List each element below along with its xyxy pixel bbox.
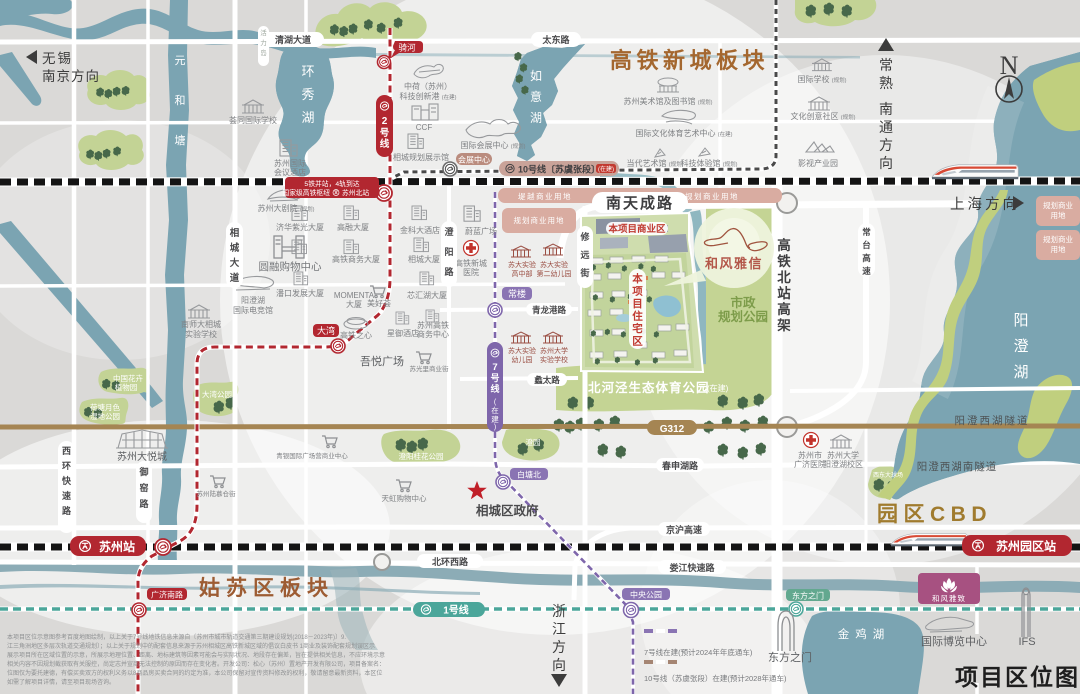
svg-text:北环西路: 北环西路 bbox=[432, 556, 469, 567]
svg-text:中国花卉: 中国花卉 bbox=[113, 373, 143, 383]
svg-text:相城大厦: 相城大厦 bbox=[408, 254, 440, 264]
svg-text:本项目住宅区: 本项目住宅区 bbox=[632, 272, 643, 348]
svg-text:南师大相城: 南师大相城 bbox=[181, 319, 221, 329]
svg-text:中央公园: 中央公园 bbox=[630, 590, 662, 600]
svg-text:苏大实验: 苏大实验 bbox=[540, 260, 568, 269]
svg-text:规划公园: 规划公园 bbox=[718, 309, 768, 324]
svg-text:堤越商业用地: 堤越商业用地 bbox=[518, 191, 572, 201]
svg-text:娄江快速路: 娄江快速路 bbox=[668, 562, 715, 573]
svg-text:蠡太路: 蠡太路 bbox=[534, 375, 560, 385]
svg-text:湿地公园: 湿地公园 bbox=[90, 411, 120, 421]
svg-text:金鸡湖: 金鸡湖 bbox=[838, 627, 891, 641]
svg-text:广济南路: 广济南路 bbox=[151, 590, 183, 600]
svg-text:如需了解项目详情，请至项目现场咨询。: 如需了解项目详情，请至项目现场咨询。 bbox=[7, 678, 115, 686]
svg-text:高融大厦: 高融大厦 bbox=[337, 222, 369, 232]
svg-text:中荷（苏州）: 中荷（苏州） bbox=[404, 81, 452, 91]
svg-text:修远街: 修远街 bbox=[579, 231, 590, 278]
svg-text:高铁之心: 高铁之心 bbox=[340, 330, 372, 340]
svg-text:第二幼儿园: 第二幼儿园 bbox=[537, 269, 572, 278]
svg-text:太东路: 太东路 bbox=[541, 34, 570, 45]
svg-text:规划商业用地: 规划商业用地 bbox=[514, 215, 565, 225]
svg-text:规划商业: 规划商业 bbox=[1043, 200, 1073, 210]
svg-text:无锡: 无锡 bbox=[42, 51, 73, 66]
svg-text:苏州站: 苏州站 bbox=[99, 539, 135, 554]
svg-text:圆融购物中心: 圆融购物中心 bbox=[259, 260, 322, 273]
svg-text:上海方向: 上海方向 bbox=[950, 196, 1020, 213]
svg-text:相城规划展示馆: 相城规划展示馆 bbox=[393, 152, 449, 162]
svg-text:阳澄西湖隧道: 阳澄西湖隧道 bbox=[955, 414, 1030, 427]
svg-text:京沪高速: 京沪高速 bbox=[666, 524, 702, 535]
svg-text:号: 号 bbox=[490, 373, 499, 383]
svg-text:国家级高铁枢纽: 国家级高铁枢纽 bbox=[282, 188, 330, 197]
svg-text:10号线〔苏虞张段〕: 10号线〔苏虞张段〕 bbox=[518, 164, 600, 175]
svg-text:阳澄湖校区: 阳澄湖校区 bbox=[823, 459, 863, 469]
svg-text:白塘北: 白塘北 bbox=[517, 470, 541, 480]
svg-text:常楼: 常楼 bbox=[508, 288, 526, 299]
svg-text:实验学校: 实验学校 bbox=[540, 355, 568, 364]
svg-text:荷塘月色: 荷塘月色 bbox=[90, 402, 120, 412]
svg-text:如意湖: 如意湖 bbox=[530, 68, 542, 125]
svg-text:苏州高铁: 苏州高铁 bbox=[417, 320, 449, 330]
svg-text:高铁新城板块: 高铁新城板块 bbox=[610, 48, 769, 73]
svg-text:大厦: 大厦 bbox=[346, 299, 362, 309]
svg-text:医院: 医院 bbox=[463, 267, 479, 277]
svg-text:澄阳路: 澄阳路 bbox=[444, 226, 454, 277]
svg-text:南天成路: 南天成路 bbox=[606, 194, 674, 212]
svg-text:潘口发展大厦: 潘口发展大厦 bbox=[276, 288, 324, 298]
svg-text:东方之门: 东方之门 bbox=[792, 591, 824, 601]
svg-text:苏州北站: 苏州北站 bbox=[342, 188, 369, 197]
svg-text:澄园: 澄园 bbox=[526, 437, 541, 447]
svg-text:影视产业园: 影视产业园 bbox=[798, 158, 838, 168]
svg-text:本项目区位示意图参考百度地图绘制，以上关于7号线地铁信息来源: 本项目区位示意图参考百度地图绘制，以上关于7号线地铁信息来源自〔苏州市城市轨道交… bbox=[7, 633, 346, 641]
svg-text:规划商业用地: 规划商业用地 bbox=[685, 191, 739, 201]
svg-text:展示项目所在区域位置的示意，所展示地理位置、距离、地标建筑等: 展示项目所在区域位置的示意，所展示地理位置、距离、地标建筑等因素可能会与实际状况… bbox=[7, 651, 385, 659]
svg-text:广济医院: 广济医院 bbox=[794, 459, 826, 469]
svg-text:高中部: 高中部 bbox=[512, 269, 533, 278]
svg-text:天虹购物中心: 天虹购物中心 bbox=[382, 493, 427, 503]
svg-text:骑河: 骑河 bbox=[398, 43, 416, 53]
svg-text:2: 2 bbox=[382, 116, 388, 127]
svg-text:用地: 用地 bbox=[1051, 210, 1067, 220]
svg-text:7号线在建(预计2024年年底通车): 7号线在建(预计2024年年底通车) bbox=[644, 647, 753, 657]
svg-text:清湖大道: 清湖大道 bbox=[275, 34, 311, 45]
svg-text:春申湖路: 春申湖路 bbox=[661, 460, 699, 471]
svg-text:芯汇湖大厦: 芯汇湖大厦 bbox=[407, 290, 447, 300]
svg-text:苏州市: 苏州市 bbox=[798, 450, 822, 460]
svg-text:商务中心: 商务中心 bbox=[417, 329, 449, 339]
svg-text:西东大球场: 西东大球场 bbox=[873, 471, 903, 479]
svg-text:吾悦广场: 吾悦广场 bbox=[360, 354, 404, 368]
svg-text:会展中心: 会展中心 bbox=[458, 155, 490, 165]
svg-text:相关内容不因规划截获取有关服控，尚定志并宣商无法控制的原因而: 相关内容不因规划截获取有关服控，尚定志并宣商无法控制的原因而存在变化者。开发公司… bbox=[7, 660, 385, 668]
svg-text:园区CBD: 园区CBD bbox=[877, 503, 992, 526]
svg-text:国际博览中心: 国际博览中心 bbox=[921, 634, 987, 648]
svg-text:金科大酒店: 金科大酒店 bbox=[400, 225, 440, 235]
svg-text:苏大实验: 苏大实验 bbox=[508, 260, 536, 269]
svg-text:济华紫光大厦: 济华紫光大厦 bbox=[276, 222, 324, 232]
svg-text:澄阳桂花公园: 澄阳桂花公园 bbox=[399, 451, 444, 461]
svg-text:阳澄西湖南隧道: 阳澄西湖南隧道 bbox=[917, 460, 998, 473]
svg-text:北河泾生态体育公园: 北河泾生态体育公园 bbox=[588, 380, 710, 395]
svg-text:南京方向: 南京方向 bbox=[42, 69, 100, 84]
svg-text:苏州大学: 苏州大学 bbox=[827, 450, 859, 460]
svg-text:10号线（苏虞张段）在建(预计2028年通车): 10号线（苏虞张段）在建(预计2028年通车) bbox=[644, 673, 787, 683]
svg-text:高铁新城: 高铁新城 bbox=[455, 258, 487, 268]
svg-text:5铁并站，4轨到达: 5铁并站，4轨到达 bbox=[304, 179, 359, 188]
svg-text:用地: 用地 bbox=[1051, 244, 1067, 254]
svg-text:荟同国际学校: 荟同国际学校 bbox=[229, 115, 277, 125]
svg-text:姑苏区板块: 姑苏区板块 bbox=[199, 577, 334, 600]
svg-text:苏光里商业街: 苏光里商业街 bbox=[410, 364, 450, 373]
svg-text:会议酒店: 会议酒店 bbox=[274, 167, 306, 177]
svg-text:(在建): (在建) bbox=[707, 383, 729, 393]
svg-text:实验学校: 实验学校 bbox=[185, 329, 217, 339]
svg-text:阳澄湖: 阳澄湖 bbox=[241, 295, 265, 305]
svg-text:青银国际广场营商业中心: 青银国际广场营商业中心 bbox=[276, 451, 348, 460]
svg-text:和风雅致: 和风雅致 bbox=[932, 593, 966, 603]
svg-text:美好荟: 美好荟 bbox=[367, 298, 391, 308]
svg-text:IFS: IFS bbox=[1018, 636, 1035, 648]
svg-text:植物园: 植物园 bbox=[115, 382, 138, 392]
svg-text:建: 建 bbox=[491, 414, 499, 424]
svg-text:苏州大悦城: 苏州大悦城 bbox=[117, 450, 167, 463]
svg-text:在: 在 bbox=[491, 405, 499, 415]
svg-text:线: 线 bbox=[490, 383, 499, 394]
svg-text:7: 7 bbox=[492, 362, 497, 373]
svg-text:规划商业: 规划商业 bbox=[1043, 234, 1073, 244]
svg-text:位图仅为要托建德，有偿买卖双方的权利义务以8商品房买卖合同的: 位图仅为要托建德，有偿买卖双方的权利义务以8商品房买卖合同的约定为准，本公司保留… bbox=[7, 669, 382, 677]
svg-text:苏大实验: 苏大实验 bbox=[508, 346, 536, 355]
svg-text:本项目商业区: 本项目商业区 bbox=[608, 223, 666, 235]
svg-text:(在建): (在建) bbox=[598, 165, 614, 173]
svg-text:苏州大学: 苏州大学 bbox=[540, 346, 568, 355]
svg-text:幼儿园: 幼儿园 bbox=[512, 355, 533, 364]
svg-text:和风雅信: 和风雅信 bbox=[705, 256, 763, 271]
svg-text:苏州陆慕仓街: 苏州陆慕仓街 bbox=[197, 489, 237, 498]
svg-text:高铁商务大厦: 高铁商务大厦 bbox=[332, 254, 380, 264]
svg-text:G312: G312 bbox=[660, 424, 685, 435]
svg-text:国际电竞馆: 国际电竞馆 bbox=[233, 305, 273, 315]
svg-text:相城区政府: 相城区政府 bbox=[476, 503, 539, 518]
svg-text:大湾: 大湾 bbox=[317, 325, 335, 336]
svg-text:苏州园区站: 苏州园区站 bbox=[996, 539, 1056, 554]
svg-text:活力岛: 活力岛 bbox=[260, 28, 267, 57]
svg-text:阳澄湖: 阳澄湖 bbox=[1013, 312, 1028, 381]
svg-text:市政: 市政 bbox=[730, 295, 756, 310]
svg-text:): ) bbox=[494, 424, 496, 431]
svg-text:青龙港路: 青龙港路 bbox=[532, 305, 567, 315]
svg-text:大湾公园: 大湾公园 bbox=[202, 389, 232, 399]
svg-text:御窑路: 御窑路 bbox=[138, 466, 149, 509]
svg-text:1号线: 1号线 bbox=[443, 604, 469, 617]
svg-text:星御酒店: 星御酒店 bbox=[387, 328, 419, 338]
svg-text:东方之门: 东方之门 bbox=[768, 650, 812, 664]
svg-text:江三角洲地区多层次轨道交通规划〕；以上关于规划中的配套信息来: 江三角洲地区多层次轨道交通规划〕；以上关于规划中的配套信息来源于苏州相城区高铁新… bbox=[7, 642, 375, 650]
svg-text:项目区位图: 项目区位图 bbox=[955, 664, 1080, 690]
svg-text:环秀湖: 环秀湖 bbox=[301, 64, 314, 125]
svg-text:CCF: CCF bbox=[416, 123, 433, 132]
svg-text:苏州国际: 苏州国际 bbox=[274, 158, 306, 168]
svg-text:号: 号 bbox=[380, 128, 390, 139]
svg-text:线: 线 bbox=[380, 138, 390, 150]
svg-text:蔚蓝广场: 蔚蓝广场 bbox=[465, 226, 497, 236]
